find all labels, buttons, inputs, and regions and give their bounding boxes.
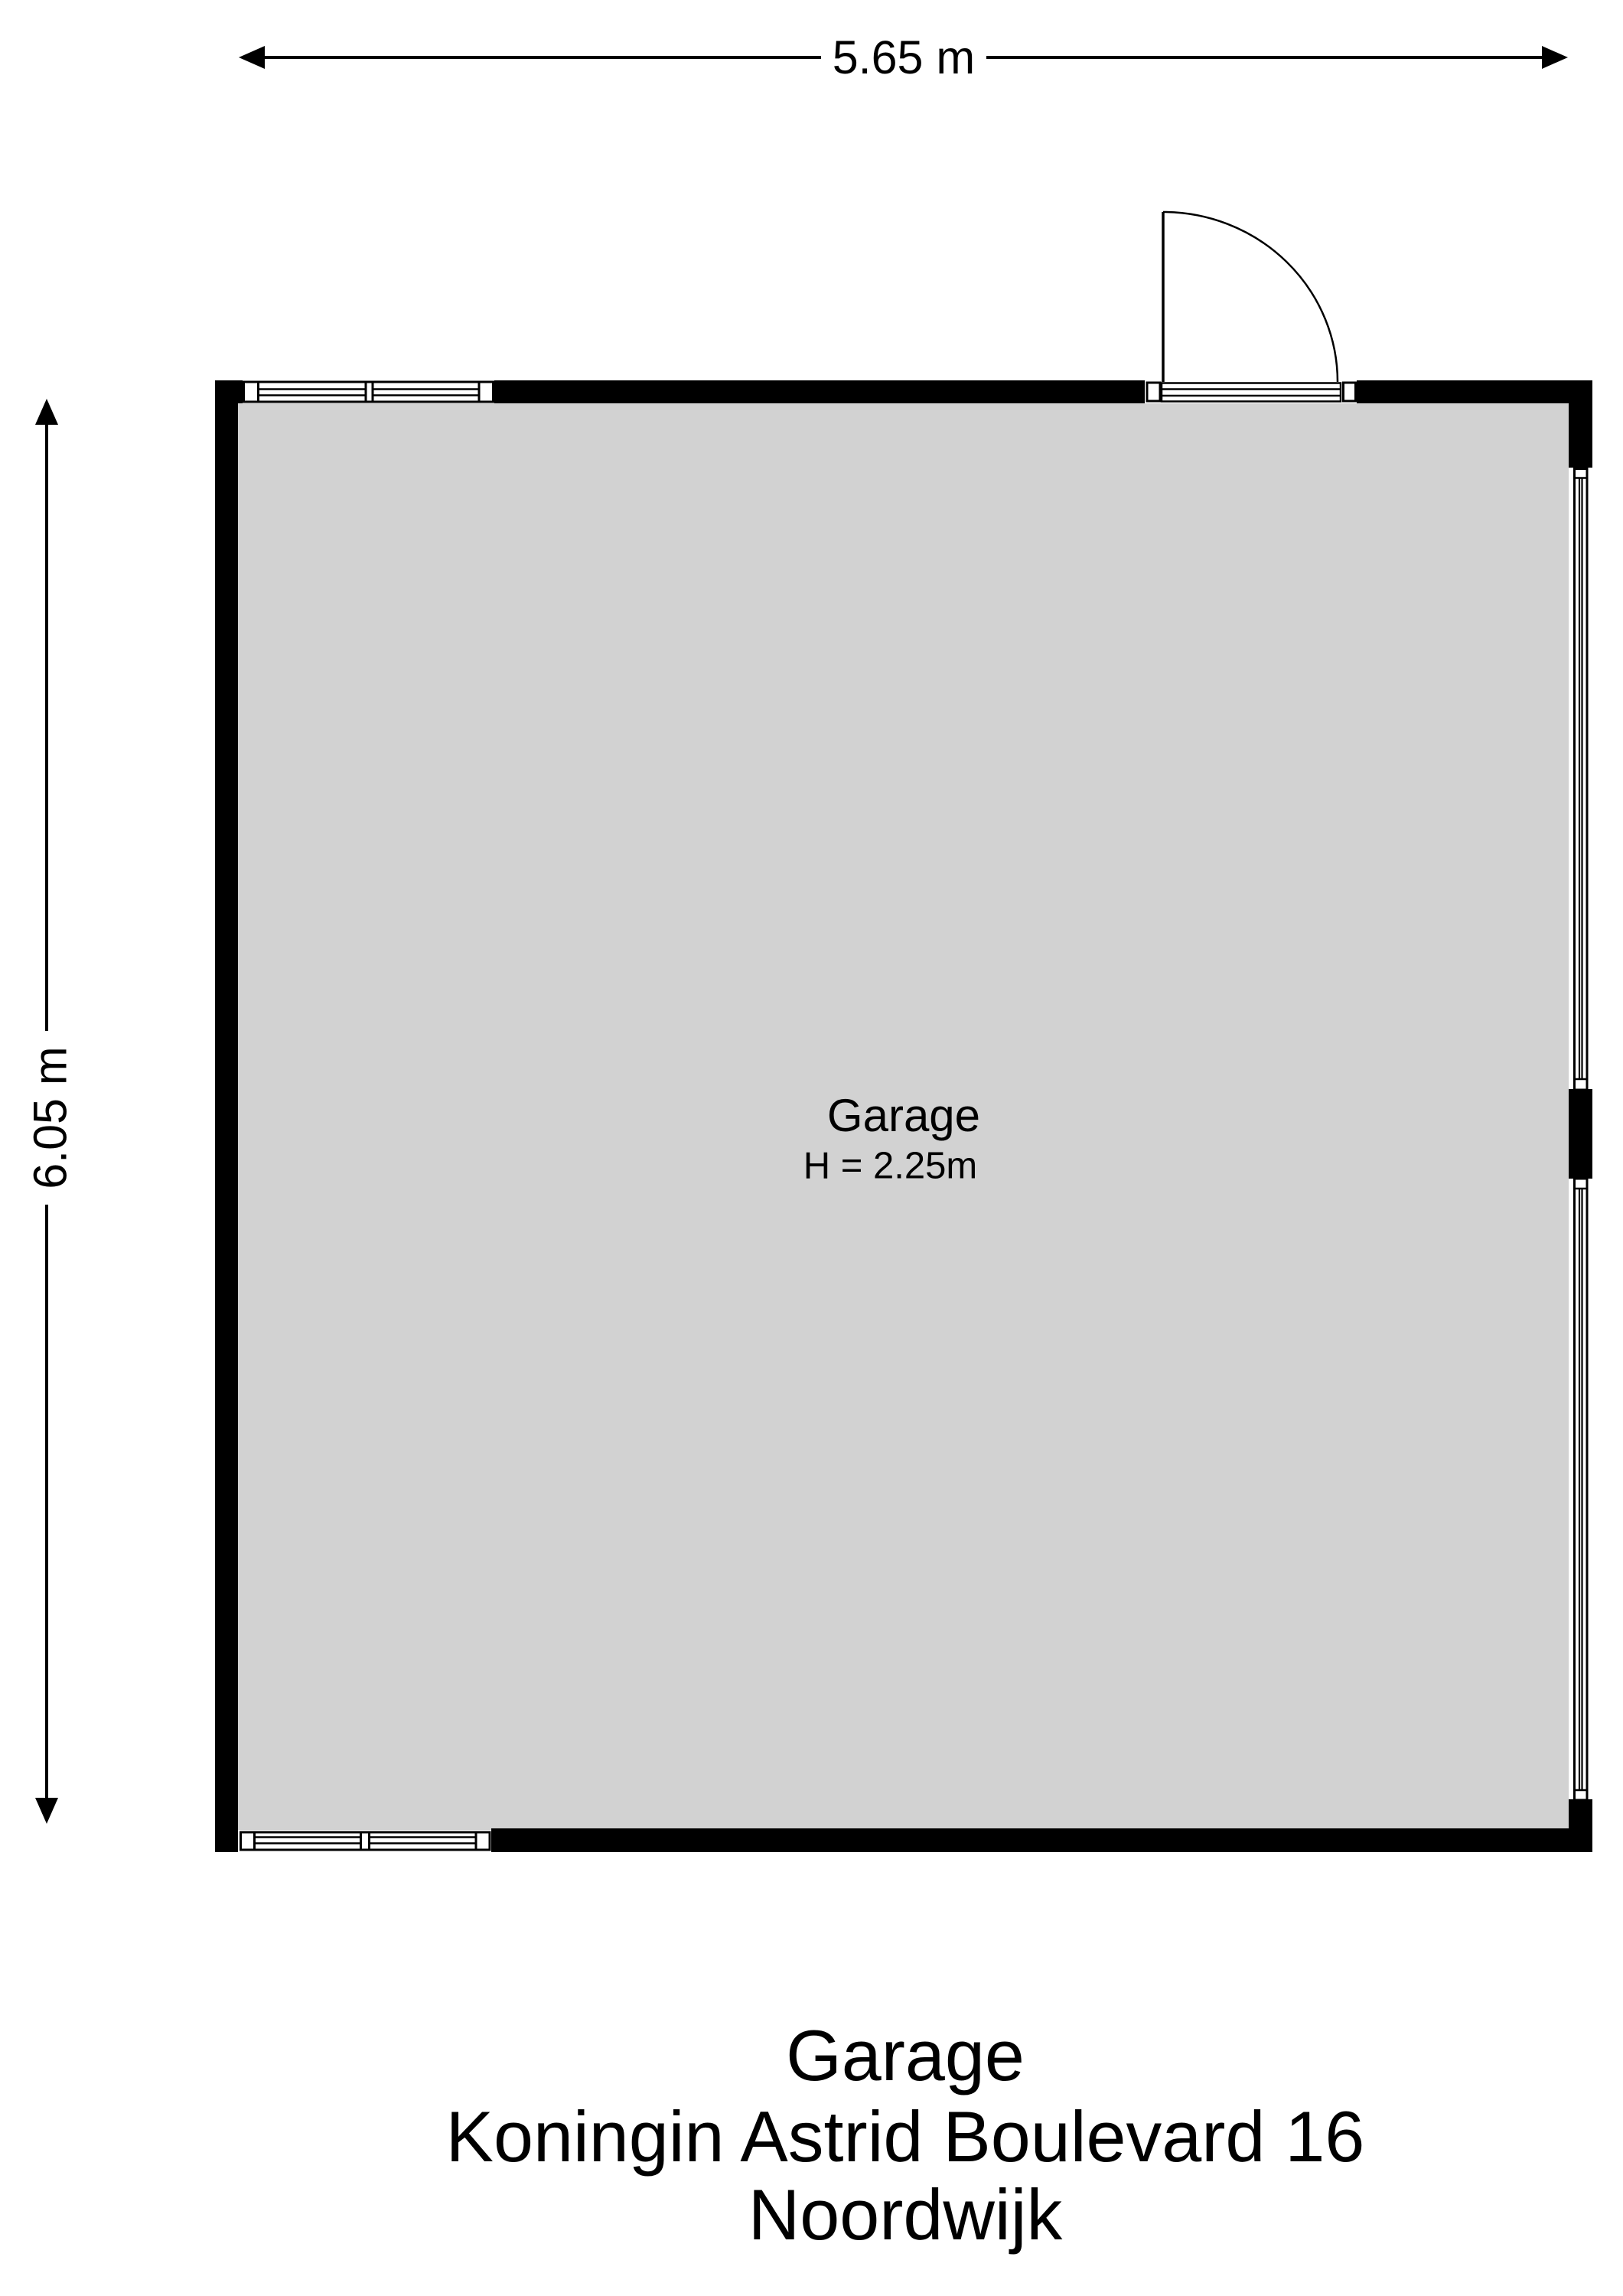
svg-text:Noordwijk: Noordwijk — [748, 2174, 1063, 2255]
svg-text:Garage: Garage — [786, 2015, 1025, 2095]
svg-text:Garage: Garage — [827, 1090, 980, 1141]
svg-text:Koningin Astrid Boulevard 16: Koningin Astrid Boulevard 16 — [446, 2096, 1365, 2177]
svg-text:H = 2.25m: H = 2.25m — [803, 1146, 977, 1187]
svg-text:6.05 m: 6.05 m — [24, 1046, 77, 1189]
svg-text:5.65 m: 5.65 m — [833, 31, 976, 83]
